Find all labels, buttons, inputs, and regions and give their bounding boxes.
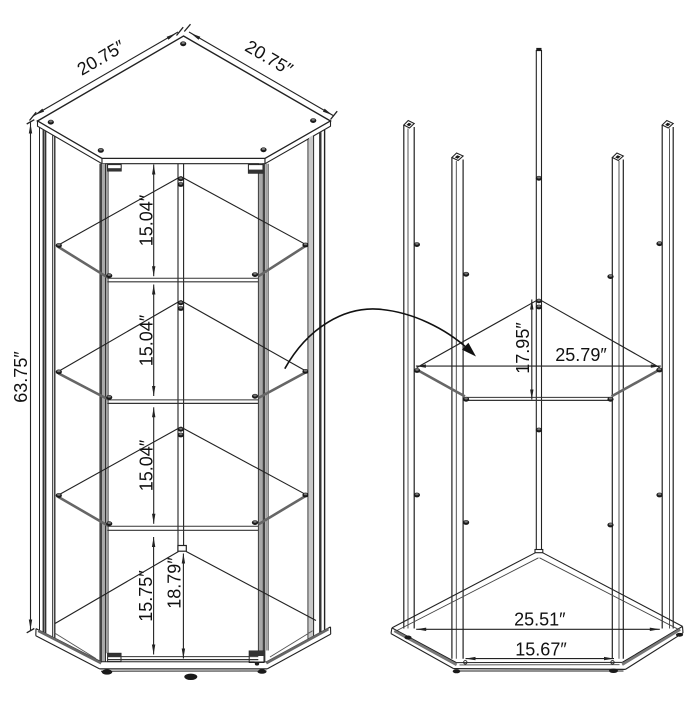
svg-text:63.75″: 63.75″ (11, 351, 31, 403)
svg-text:25.79″: 25.79″ (555, 345, 607, 365)
svg-text:18.79″: 18.79″ (164, 557, 184, 609)
svg-text:15.04″: 15.04″ (136, 314, 156, 366)
svg-text:15.04″: 15.04″ (136, 194, 156, 246)
svg-text:25.51″: 25.51″ (514, 610, 566, 630)
svg-text:15.67″: 15.67″ (515, 640, 567, 660)
svg-text:20.75″: 20.75″ (242, 36, 297, 80)
svg-text:15.75″: 15.75″ (136, 570, 156, 622)
svg-text:15.04″: 15.04″ (136, 439, 156, 491)
